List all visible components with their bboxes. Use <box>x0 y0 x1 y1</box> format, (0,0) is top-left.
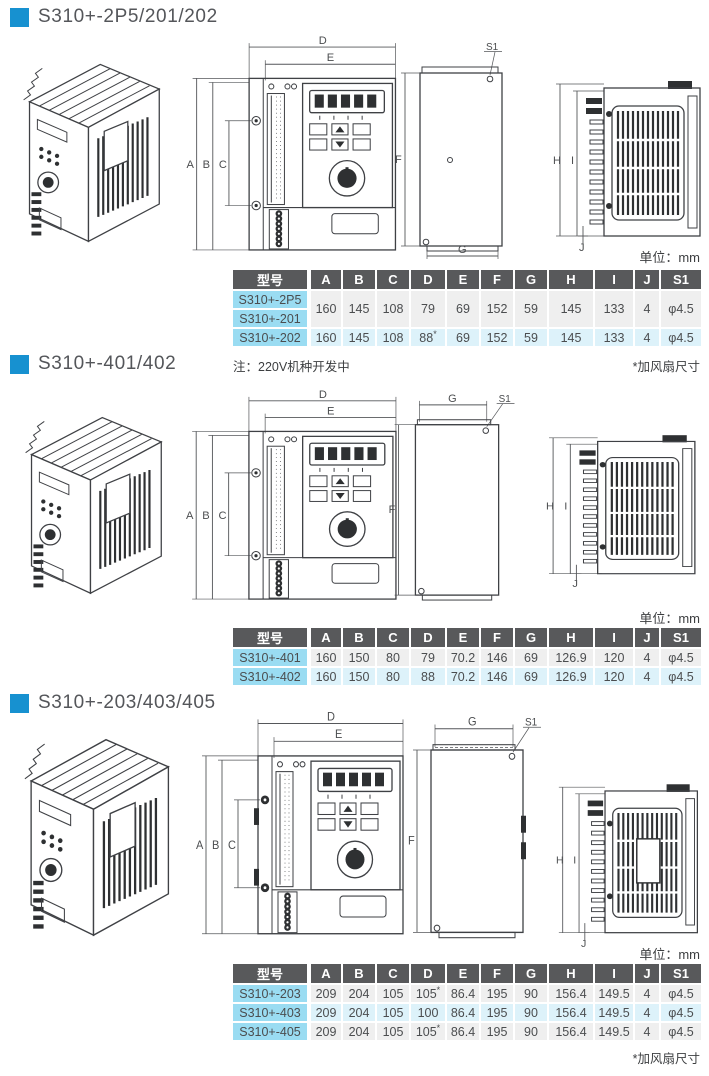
dim-value-e: 86.4 <box>447 1023 479 1040</box>
dim-label-i: I <box>573 855 576 867</box>
table-header-i: I <box>595 270 633 289</box>
dim-label-a: A <box>196 840 204 852</box>
dim-value-j: 4 <box>635 668 659 685</box>
section-title-1: S310+-2P5/201/202 <box>10 6 218 28</box>
dim-value-e: 86.4 <box>447 1004 479 1021</box>
dim-label-e: E <box>327 406 334 418</box>
table-header-a: A <box>309 964 341 983</box>
dim-value-c: 105 <box>377 1004 409 1021</box>
table-header-d: D <box>411 964 445 983</box>
dim-value-d: 100 <box>411 1004 445 1021</box>
model-cell: S310+-401 <box>233 649 307 666</box>
dim-label-i: I <box>564 501 567 512</box>
dim-value-s1: φ4.5 <box>661 1004 701 1021</box>
dim-value-j: 4 <box>635 1004 659 1021</box>
dim-value-a: 209 <box>309 1004 341 1021</box>
dim-label-j: J <box>572 579 578 588</box>
unit-label: 单位：mm <box>530 247 700 266</box>
dim-label-c: C <box>228 840 236 852</box>
side-view-drawing: G S1 F <box>405 715 555 943</box>
table-header-i: I <box>595 964 633 983</box>
dim-value-s1: φ4.5 <box>661 1023 701 1040</box>
dim-label-e: E <box>335 729 343 741</box>
dim-label-d: D <box>327 712 335 723</box>
table-header-model: 型号 <box>233 270 307 289</box>
terminal-strip <box>269 210 288 249</box>
table-header-c: C <box>377 628 409 647</box>
table-row: S310+-40320920410510086.419590156.4149.5… <box>233 1004 701 1021</box>
model-cell: S310+-203 <box>233 985 307 1002</box>
fan-note: *加风扇尺寸 <box>530 1048 700 1067</box>
side-view-drawing: G S1 F <box>385 392 535 605</box>
table-header-f: F <box>481 964 513 983</box>
unit-label: 单位：mm <box>530 608 700 627</box>
model-cell: S310+-2P5 <box>233 291 307 308</box>
dim-label-g: G <box>458 244 467 256</box>
front-view-drawing: D E A B C <box>182 36 400 256</box>
section-title-text: S310+-401/402 <box>38 353 176 375</box>
dim-value-a: 209 <box>309 985 341 1002</box>
dim-value-e: 70.2 <box>447 649 479 666</box>
dim-value-a: 209 <box>309 1023 341 1040</box>
section-title-text: S310+-2P5/201/202 <box>38 6 218 28</box>
dim-value-f: 146 <box>481 668 513 685</box>
dim-value-c: 80 <box>377 668 409 685</box>
section-title-3: S310+-203/403/405 <box>10 692 216 714</box>
table-header-i: I <box>595 628 633 647</box>
model-cell: S310+-403 <box>233 1004 307 1021</box>
dim-value-a: 160 <box>309 668 341 685</box>
back-view-drawing: H I J <box>545 420 705 588</box>
dim-value-f: 146 <box>481 649 513 666</box>
dim-value-f: 152 <box>481 329 513 346</box>
dimensions-table-2: 型号ABCDEFGHIJS1S310+-401160150807970.2146… <box>231 626 703 687</box>
dim-label-d: D <box>319 36 327 47</box>
dim-value-s1: φ4.5 <box>661 329 701 346</box>
table-header-row: 型号ABCDEFGHIJS1 <box>233 270 701 289</box>
table-header-row: 型号ABCDEFGHIJS1 <box>233 628 701 647</box>
isometric-view-drawing <box>4 398 176 603</box>
dim-label-a: A <box>187 159 195 171</box>
dim-label-b: B <box>203 159 210 171</box>
dim-value-g: 90 <box>515 985 547 1002</box>
dim-value-f: 152 <box>481 291 513 327</box>
table-header-b: B <box>343 628 375 647</box>
dim-value-s1: φ4.5 <box>661 649 701 666</box>
dim-value-d: 105* <box>411 985 445 1002</box>
table-header-s1: S1 <box>661 964 701 983</box>
dim-value-i: 133 <box>595 329 633 346</box>
dim-value-j: 4 <box>635 649 659 666</box>
dim-value-b: 145 <box>343 329 375 346</box>
table-row: S310+-402160150808870.214669126.91204φ4.… <box>233 668 701 685</box>
dim-value-i: 120 <box>595 668 633 685</box>
dim-label-d: D <box>319 390 327 401</box>
table-header-h: H <box>549 628 593 647</box>
table-header-row: 型号ABCDEFGHIJS1 <box>233 964 701 983</box>
dim-value-b: 150 <box>343 668 375 685</box>
rear-grille <box>612 106 684 220</box>
section-title-text: S310+-203/403/405 <box>38 692 216 714</box>
dim-value-h: 126.9 <box>549 668 593 685</box>
table-header-model: 型号 <box>233 628 307 647</box>
dim-value-s1: φ4.5 <box>661 985 701 1002</box>
dim-value-c: 80 <box>377 649 409 666</box>
table-header-model: 型号 <box>233 964 307 983</box>
side-view-drawing: S1 F G <box>392 38 527 260</box>
dim-value-b: 150 <box>343 649 375 666</box>
table-header-e: E <box>447 964 479 983</box>
table-header-a: A <box>309 270 341 289</box>
dim-value-i: 149.5 <box>595 1004 633 1021</box>
table-header-g: G <box>515 270 547 289</box>
table-row: S310+-405209204105105*86.419590156.4149.… <box>233 1023 701 1040</box>
dim-label-c: C <box>219 510 227 522</box>
model-cell: S310+-405 <box>233 1023 307 1040</box>
dim-value-b: 145 <box>343 291 375 327</box>
dimensions-table-1: 型号ABCDEFGHIJS1S310+-2P516014510879691525… <box>231 268 703 348</box>
dim-value-g: 90 <box>515 1004 547 1021</box>
back-view-drawing: H I J <box>555 768 707 948</box>
dim-value-g: 69 <box>515 649 547 666</box>
table-header-c: C <box>377 964 409 983</box>
dim-value-j: 4 <box>635 291 659 327</box>
table-row: S310+-2P51601451087969152591451334φ4.5 <box>233 291 701 308</box>
table-header-j: J <box>635 964 659 983</box>
dim-label-i: I <box>571 155 574 167</box>
dim-label-f: F <box>395 154 402 166</box>
dim-label-g: G <box>448 393 456 405</box>
dim-value-i: 149.5 <box>595 985 633 1002</box>
dim-label-b: B <box>212 840 219 852</box>
dim-value-f: 195 <box>481 985 513 1002</box>
front-view-drawing: D E A B C <box>192 712 407 940</box>
dim-value-e: 69 <box>447 291 479 327</box>
table-header-d: D <box>411 270 445 289</box>
isometric-view-drawing <box>2 718 184 946</box>
table-header-e: E <box>447 628 479 647</box>
dim-value-d: 105* <box>411 1023 445 1040</box>
dim-value-e: 69 <box>447 329 479 346</box>
table-header-c: C <box>377 270 409 289</box>
dim-value-a: 160 <box>309 329 341 346</box>
dim-label-c: C <box>219 159 227 171</box>
dim-value-b: 204 <box>343 985 375 1002</box>
dim-value-f: 195 <box>481 1023 513 1040</box>
model-cell: S310+-402 <box>233 668 307 685</box>
dim-value-c: 108 <box>377 329 409 346</box>
dim-value-e: 86.4 <box>447 985 479 1002</box>
section-bullet-icon <box>10 8 29 27</box>
table-header-b: B <box>343 270 375 289</box>
table-row: S310+-20216014510888*69152591451334φ4.5 <box>233 329 701 346</box>
table-header-s1: S1 <box>661 628 701 647</box>
dim-value-h: 145 <box>549 329 593 346</box>
table-header-e: E <box>447 270 479 289</box>
dim-value-d: 88 <box>411 668 445 685</box>
table-header-g: G <box>515 964 547 983</box>
dim-value-i: 120 <box>595 649 633 666</box>
dim-value-j: 4 <box>635 1023 659 1040</box>
dim-value-d: 79 <box>411 291 445 327</box>
dim-value-s1: φ4.5 <box>661 291 701 327</box>
table-row: S310+-401160150807970.214669126.91204φ4.… <box>233 649 701 666</box>
table-header-a: A <box>309 628 341 647</box>
dim-value-e: 70.2 <box>447 668 479 685</box>
table-header-b: B <box>343 964 375 983</box>
unit-label: 单位：mm <box>530 944 700 963</box>
table-header-j: J <box>635 270 659 289</box>
keypad <box>303 83 393 207</box>
isometric-view-drawing <box>2 44 174 252</box>
table-header-d: D <box>411 628 445 647</box>
dim-value-h: 145 <box>549 291 593 327</box>
dim-label-g: G <box>468 716 477 728</box>
dim-label-f: F <box>389 504 396 516</box>
dimensions-table-3: 型号ABCDEFGHIJS1S310+-203209204105105*86.4… <box>231 962 703 1042</box>
dim-value-s1: φ4.5 <box>661 668 701 685</box>
dev-note: 注：220V机种开发中 <box>233 356 350 375</box>
dim-label-f: F <box>408 835 415 847</box>
dim-value-b: 204 <box>343 1023 375 1040</box>
section-bullet-icon <box>10 694 29 713</box>
dim-value-d: 88* <box>411 329 445 346</box>
table-header-h: H <box>549 964 593 983</box>
dim-value-h: 156.4 <box>549 1023 593 1040</box>
model-cell: S310+-202 <box>233 329 307 346</box>
table-header-h: H <box>549 270 593 289</box>
section-title-2: S310+-401/402 <box>10 353 176 375</box>
fan-cutout <box>637 839 660 883</box>
section-bullet-icon <box>10 355 29 374</box>
fan-note: *加风扇尺寸 <box>530 356 700 375</box>
table-row: S310+-203209204105105*86.419590156.4149.… <box>233 985 701 1002</box>
dim-value-i: 149.5 <box>595 1023 633 1040</box>
dim-value-g: 90 <box>515 1023 547 1040</box>
table-header-g: G <box>515 628 547 647</box>
dim-value-j: 4 <box>635 985 659 1002</box>
dim-label-a: A <box>186 510 194 522</box>
table-header-f: F <box>481 628 513 647</box>
dim-value-c: 105 <box>377 1023 409 1040</box>
dim-value-g: 59 <box>515 329 547 346</box>
dim-label-e: E <box>327 52 334 64</box>
back-view-drawing: H I J <box>552 64 709 252</box>
dim-value-c: 105 <box>377 985 409 1002</box>
dim-value-b: 204 <box>343 1004 375 1021</box>
front-view-drawing: D E A B C <box>182 390 400 605</box>
dim-value-j: 4 <box>635 329 659 346</box>
dim-value-i: 133 <box>595 291 633 327</box>
dim-value-d: 79 <box>411 649 445 666</box>
table-header-j: J <box>635 628 659 647</box>
dim-value-c: 108 <box>377 291 409 327</box>
dim-value-g: 59 <box>515 291 547 327</box>
dim-label-b: B <box>202 510 209 522</box>
dim-value-h: 126.9 <box>549 649 593 666</box>
dim-value-g: 69 <box>515 668 547 685</box>
table-header-f: F <box>481 270 513 289</box>
dim-value-f: 195 <box>481 1004 513 1021</box>
heatsink-fins <box>586 98 603 224</box>
dim-value-a: 160 <box>309 291 341 327</box>
dim-value-a: 160 <box>309 649 341 666</box>
dim-value-h: 156.4 <box>549 985 593 1002</box>
dim-value-h: 156.4 <box>549 1004 593 1021</box>
model-cell: S310+-201 <box>233 310 307 327</box>
table-header-s1: S1 <box>661 270 701 289</box>
